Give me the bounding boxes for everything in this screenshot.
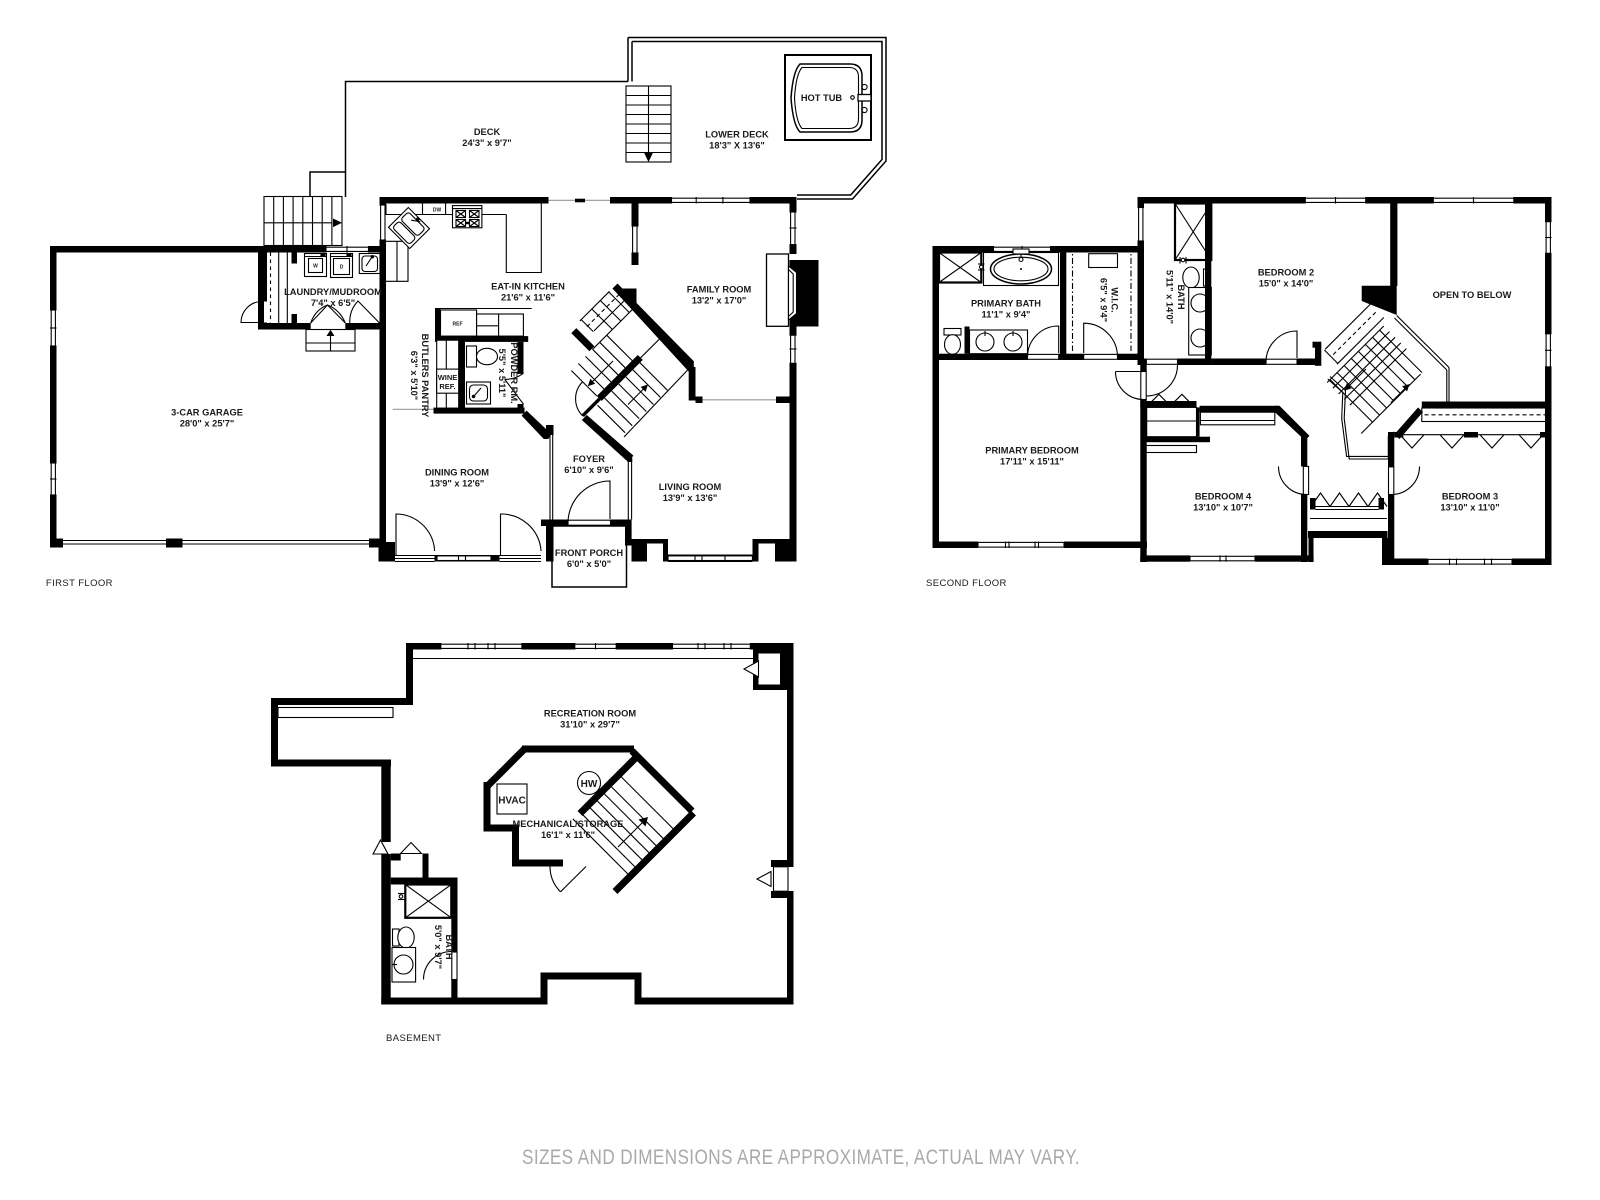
svg-text:13'10" x 11'0": 13'10" x 11'0" xyxy=(1440,503,1499,513)
svg-text:13'10" x 10'7": 13'10" x 10'7" xyxy=(1193,503,1253,513)
svg-text:D: D xyxy=(340,265,344,271)
svg-text:28'0" x 25'7": 28'0" x 25'7" xyxy=(180,419,235,429)
svg-text:5'11" x 14'0": 5'11" x 14'0" xyxy=(1165,270,1175,324)
svg-text:13'9" x 12'6": 13'9" x 12'6" xyxy=(430,479,485,489)
svg-text:18'3" X 13'6": 18'3" X 13'6" xyxy=(709,141,765,151)
svg-text:W: W xyxy=(313,264,318,270)
svg-text:SECOND FLOOR: SECOND FLOOR xyxy=(926,578,1007,589)
svg-text:6'5" x 9'4": 6'5" x 9'4" xyxy=(1099,278,1109,322)
svg-text:FAMILY ROOM: FAMILY ROOM xyxy=(687,285,752,295)
svg-text:LIVING ROOM: LIVING ROOM xyxy=(659,482,722,492)
svg-text:PRIMARY BEDROOM: PRIMARY BEDROOM xyxy=(985,446,1079,456)
svg-text:6'3" x 5'10": 6'3" x 5'10" xyxy=(409,351,419,400)
svg-text:BEDROOM 3: BEDROOM 3 xyxy=(1442,492,1498,502)
svg-text:DW: DW xyxy=(433,208,442,214)
svg-text:FIRST FLOOR: FIRST FLOOR xyxy=(46,578,113,589)
svg-text:13'2" x 17'0": 13'2" x 17'0" xyxy=(692,296,747,306)
svg-text:HOT TUB: HOT TUB xyxy=(801,93,843,103)
svg-text:3-CAR GARAGE: 3-CAR GARAGE xyxy=(171,408,243,418)
svg-text:6'10" x 9'6": 6'10" x 9'6" xyxy=(564,465,613,475)
svg-text:24'3" x 9'7": 24'3" x 9'7" xyxy=(462,138,511,148)
svg-text:5'5" x 5'11": 5'5" x 5'11" xyxy=(497,349,507,398)
svg-text:BATH: BATH xyxy=(444,934,454,959)
svg-text:POWDER RM.: POWDER RM. xyxy=(509,342,519,403)
svg-text:16'1" x 11'6": 16'1" x 11'6" xyxy=(541,830,595,840)
svg-text:13'9" x 13'6": 13'9" x 13'6" xyxy=(663,493,718,503)
svg-text:BEDROOM 4: BEDROOM 4 xyxy=(1195,492,1252,502)
svg-text:EAT-IN KITCHEN: EAT-IN KITCHEN xyxy=(491,282,565,292)
svg-text:REF.: REF. xyxy=(439,382,455,391)
svg-text:OPEN TO BELOW: OPEN TO BELOW xyxy=(1433,290,1512,300)
svg-text:21'6" x 11'6": 21'6" x 11'6" xyxy=(501,293,555,303)
svg-text:6'0" x 5'0": 6'0" x 5'0" xyxy=(567,559,611,569)
svg-text:5'0" x 9'7": 5'0" x 9'7" xyxy=(433,925,443,969)
svg-text:LAUNDRY/MUDROOM: LAUNDRY/MUDROOM xyxy=(284,287,382,297)
svg-text:BASEMENT: BASEMENT xyxy=(386,1033,441,1044)
svg-text:SIZES AND DIMENSIONS ARE APPRO: SIZES AND DIMENSIONS ARE APPROXIMATE, AC… xyxy=(522,1146,1080,1169)
svg-text:7'4" x 6'5": 7'4" x 6'5" xyxy=(311,298,355,308)
svg-text:15'0" x 14'0": 15'0" x 14'0" xyxy=(1259,279,1314,289)
svg-text:WINE: WINE xyxy=(438,373,458,382)
svg-text:BUTLERS PANTRY: BUTLERS PANTRY xyxy=(420,334,430,418)
svg-text:FOYER: FOYER xyxy=(573,454,605,464)
svg-text:MECHANICAL/STORAGE: MECHANICAL/STORAGE xyxy=(513,819,624,829)
svg-text:BEDROOM 2: BEDROOM 2 xyxy=(1258,268,1314,278)
svg-text:31'10" x 29'7": 31'10" x 29'7" xyxy=(560,720,620,730)
svg-text:HVAC: HVAC xyxy=(498,796,526,807)
svg-text:FRONT PORCH: FRONT PORCH xyxy=(555,548,623,558)
svg-text:DECK: DECK xyxy=(474,127,501,137)
svg-text:17'11" x 15'11": 17'11" x 15'11" xyxy=(1000,457,1064,467)
svg-text:REF: REF xyxy=(453,322,463,328)
svg-text:BATH: BATH xyxy=(1176,284,1186,309)
svg-text:RECREATION ROOM: RECREATION ROOM xyxy=(544,709,637,719)
svg-text:DINING ROOM: DINING ROOM xyxy=(425,468,489,478)
svg-text:LOWER DECK: LOWER DECK xyxy=(705,130,769,140)
svg-text:11'1" x 9'4": 11'1" x 9'4" xyxy=(982,310,1031,320)
svg-text:HW: HW xyxy=(581,779,598,790)
svg-text:PRIMARY BATH: PRIMARY BATH xyxy=(971,299,1041,309)
svg-text:W.I.C.: W.I.C. xyxy=(1110,287,1120,312)
